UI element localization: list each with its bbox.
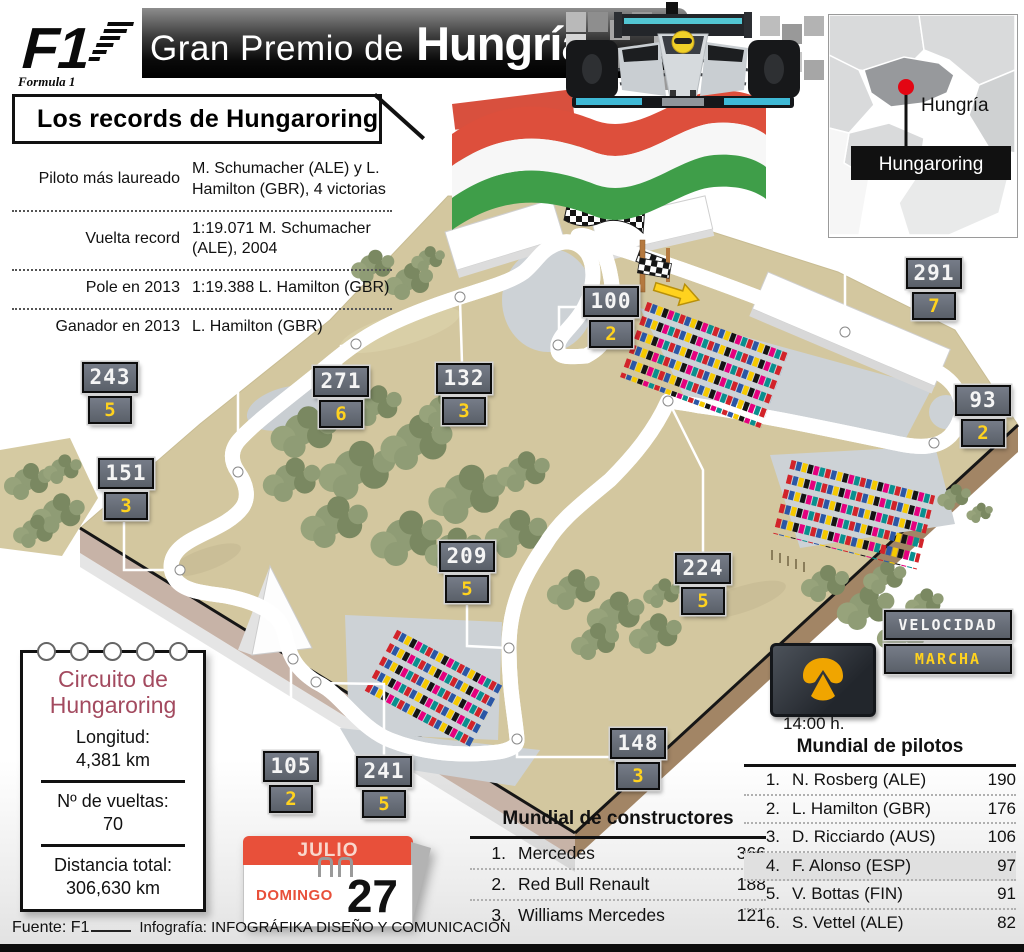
bottom-bar [0, 944, 1024, 952]
speed-gear-marker: 209 5 [439, 541, 495, 603]
note-value: 306,630 km [23, 878, 203, 899]
speed-display: 271 [313, 366, 369, 397]
gear-display: 5 [88, 396, 132, 424]
calendar-day-name: DOMINGO [244, 887, 333, 904]
legend-speed-label: VELOCIDAD [884, 610, 1012, 640]
speed-gear-marker: 291 7 [906, 258, 962, 320]
speed-gear-marker: 93 2 [955, 385, 1011, 447]
gear-display: 5 [681, 587, 725, 615]
legend-gear: MARCHA [884, 644, 1012, 674]
footer-divider-line [91, 930, 131, 932]
table-row: 2. Red Bull Renault 188 [470, 870, 766, 901]
calendar-ring [338, 857, 353, 877]
table-row: 1. Mercedes 366 [470, 839, 766, 870]
note-value: 4,381 km [23, 750, 203, 771]
race-date-calendar: JULIO DOMINGO 27 [243, 836, 413, 928]
gear-display: 3 [442, 397, 486, 425]
note-title: Circuito de Hungaroring [23, 667, 203, 719]
gear-display: 5 [362, 790, 406, 818]
calendar-stand [411, 842, 431, 926]
map-circuit-label: Hungaroring [879, 154, 984, 175]
speed-gear-marker: 132 3 [436, 363, 492, 425]
gear-display: 2 [589, 320, 633, 348]
record-row: Vuelta record 1:19.071 M. Schumacher (AL… [12, 212, 392, 272]
table-row: 3. Williams Mercedes 121 [470, 901, 766, 930]
note-hole [169, 642, 188, 661]
circuit-info-note: Circuito de Hungaroring Longitud: 4,381 … [20, 650, 206, 912]
record-row: Piloto más laureado M. Schumacher (ALE) … [12, 152, 392, 212]
speed-display: 241 [356, 756, 412, 787]
note-hole [103, 642, 122, 661]
note-hole [136, 642, 155, 661]
note-hole [37, 642, 56, 661]
gear-display: 3 [616, 762, 660, 790]
speed-display: 151 [98, 458, 154, 489]
f1-logo-icon: F1 Formula 1 [0, 6, 142, 92]
record-value: L. Hamilton (GBR) [192, 317, 392, 338]
records-list: Piloto más laureado M. Schumacher (ALE) … [12, 152, 392, 347]
speed-display: 105 [263, 751, 319, 782]
record-label: Ganador en 2013 [12, 317, 192, 338]
table-row: 6. S. Vettel (ALE) 82 [744, 910, 1016, 937]
speed-display: 93 [955, 385, 1011, 416]
record-label: Pole en 2013 [12, 278, 192, 299]
speed-display: 291 [906, 258, 962, 289]
map-countries [829, 15, 1015, 235]
broadcast-time: 14:00 h. [783, 714, 844, 734]
record-label: Piloto más laureado [12, 169, 192, 190]
table-row: 1. N. Rosberg (ALE) 190 [744, 767, 1016, 796]
records-title-box: Los records de Hungaroring [12, 94, 382, 144]
antena3-icon [797, 656, 849, 704]
gear-display: 6 [319, 400, 363, 428]
constructors-title: Mundial de constructores [470, 808, 766, 839]
gear-display: 2 [269, 785, 313, 813]
drivers-standings: Mundial de pilotos 1. N. Rosberg (ALE) 1… [744, 736, 1016, 936]
tv-channel-logo [770, 643, 876, 717]
speed-display: 100 [583, 286, 639, 317]
speed-display: 209 [439, 541, 495, 572]
speed-gear-marker: 241 5 [356, 756, 412, 818]
legend-speed: VELOCIDAD [884, 610, 1012, 640]
record-value: 1:19.388 L. Hamilton (GBR) [192, 278, 392, 299]
record-value: 1:19.071 M. Schumacher (ALE), 2004 [192, 219, 392, 261]
speed-gear-marker: 243 5 [82, 362, 138, 424]
calendar-day-number: 27 [347, 868, 398, 924]
records-title: Los records de Hungaroring [37, 105, 378, 134]
footer-credit: Infografía: INFOGRÁFIKA DISEÑO Y COMUNIC… [139, 919, 510, 936]
speed-gear-marker: 148 3 [610, 728, 666, 790]
location-map: Hungría Hungaroring [828, 14, 1018, 238]
map-location-dot [898, 79, 914, 95]
gear-display: 2 [961, 419, 1005, 447]
speed-display: 243 [82, 362, 138, 393]
f1-logo: F1 Formula 1 [0, 6, 142, 92]
footer-source: Fuente: F1 [12, 919, 89, 937]
gear-display: 5 [445, 575, 489, 603]
record-row: Pole en 2013 1:19.388 L. Hamilton (GBR) [12, 271, 392, 310]
table-row-highlighted: 4. F. Alonso (ESP) 97 [744, 853, 1016, 882]
note-label: Distancia total: [23, 855, 203, 876]
record-row: Ganador en 2013 L. Hamilton (GBR) [12, 310, 392, 347]
f1-logo-subtext: Formula 1 [17, 74, 75, 89]
legend-gear-label: MARCHA [884, 644, 1012, 674]
speed-gear-marker: 100 2 [583, 286, 639, 348]
f1-logo-text: F1 [15, 17, 99, 81]
note-value: 70 [23, 814, 203, 835]
map-country-label: Hungría [921, 95, 989, 116]
note-label: Nº de vueltas: [23, 791, 203, 812]
footer: Fuente: F1 Infografía: INFOGRÁFIKA DISEÑ… [12, 919, 511, 937]
speed-gear-marker: 105 2 [263, 751, 319, 813]
table-row: 3. D. Ricciardo (AUS) 106 [744, 824, 1016, 853]
drivers-title: Mundial de pilotos [744, 736, 1016, 767]
record-label: Vuelta record [12, 229, 192, 250]
speed-gear-marker: 271 6 [313, 366, 369, 428]
table-row: 2. L. Hamilton (GBR) 176 [744, 796, 1016, 825]
speed-display: 132 [436, 363, 492, 394]
gear-display: 3 [104, 492, 148, 520]
calendar-body: DOMINGO 27 [243, 865, 413, 927]
speed-display: 224 [675, 553, 731, 584]
gear-display: 7 [912, 292, 956, 320]
constructors-standings: Mundial de constructores 1. Mercedes 366… [470, 808, 766, 930]
table-row: 5. V. Bottas (FIN) 91 [744, 881, 1016, 910]
record-value: M. Schumacher (ALE) y L. Hamilton (GBR),… [192, 159, 392, 201]
speed-gear-marker: 224 5 [675, 553, 731, 615]
note-label: Longitud: [23, 727, 203, 748]
note-hole [70, 642, 89, 661]
calendar-ring [318, 857, 333, 877]
speed-gear-marker: 151 3 [98, 458, 154, 520]
speed-display: 148 [610, 728, 666, 759]
